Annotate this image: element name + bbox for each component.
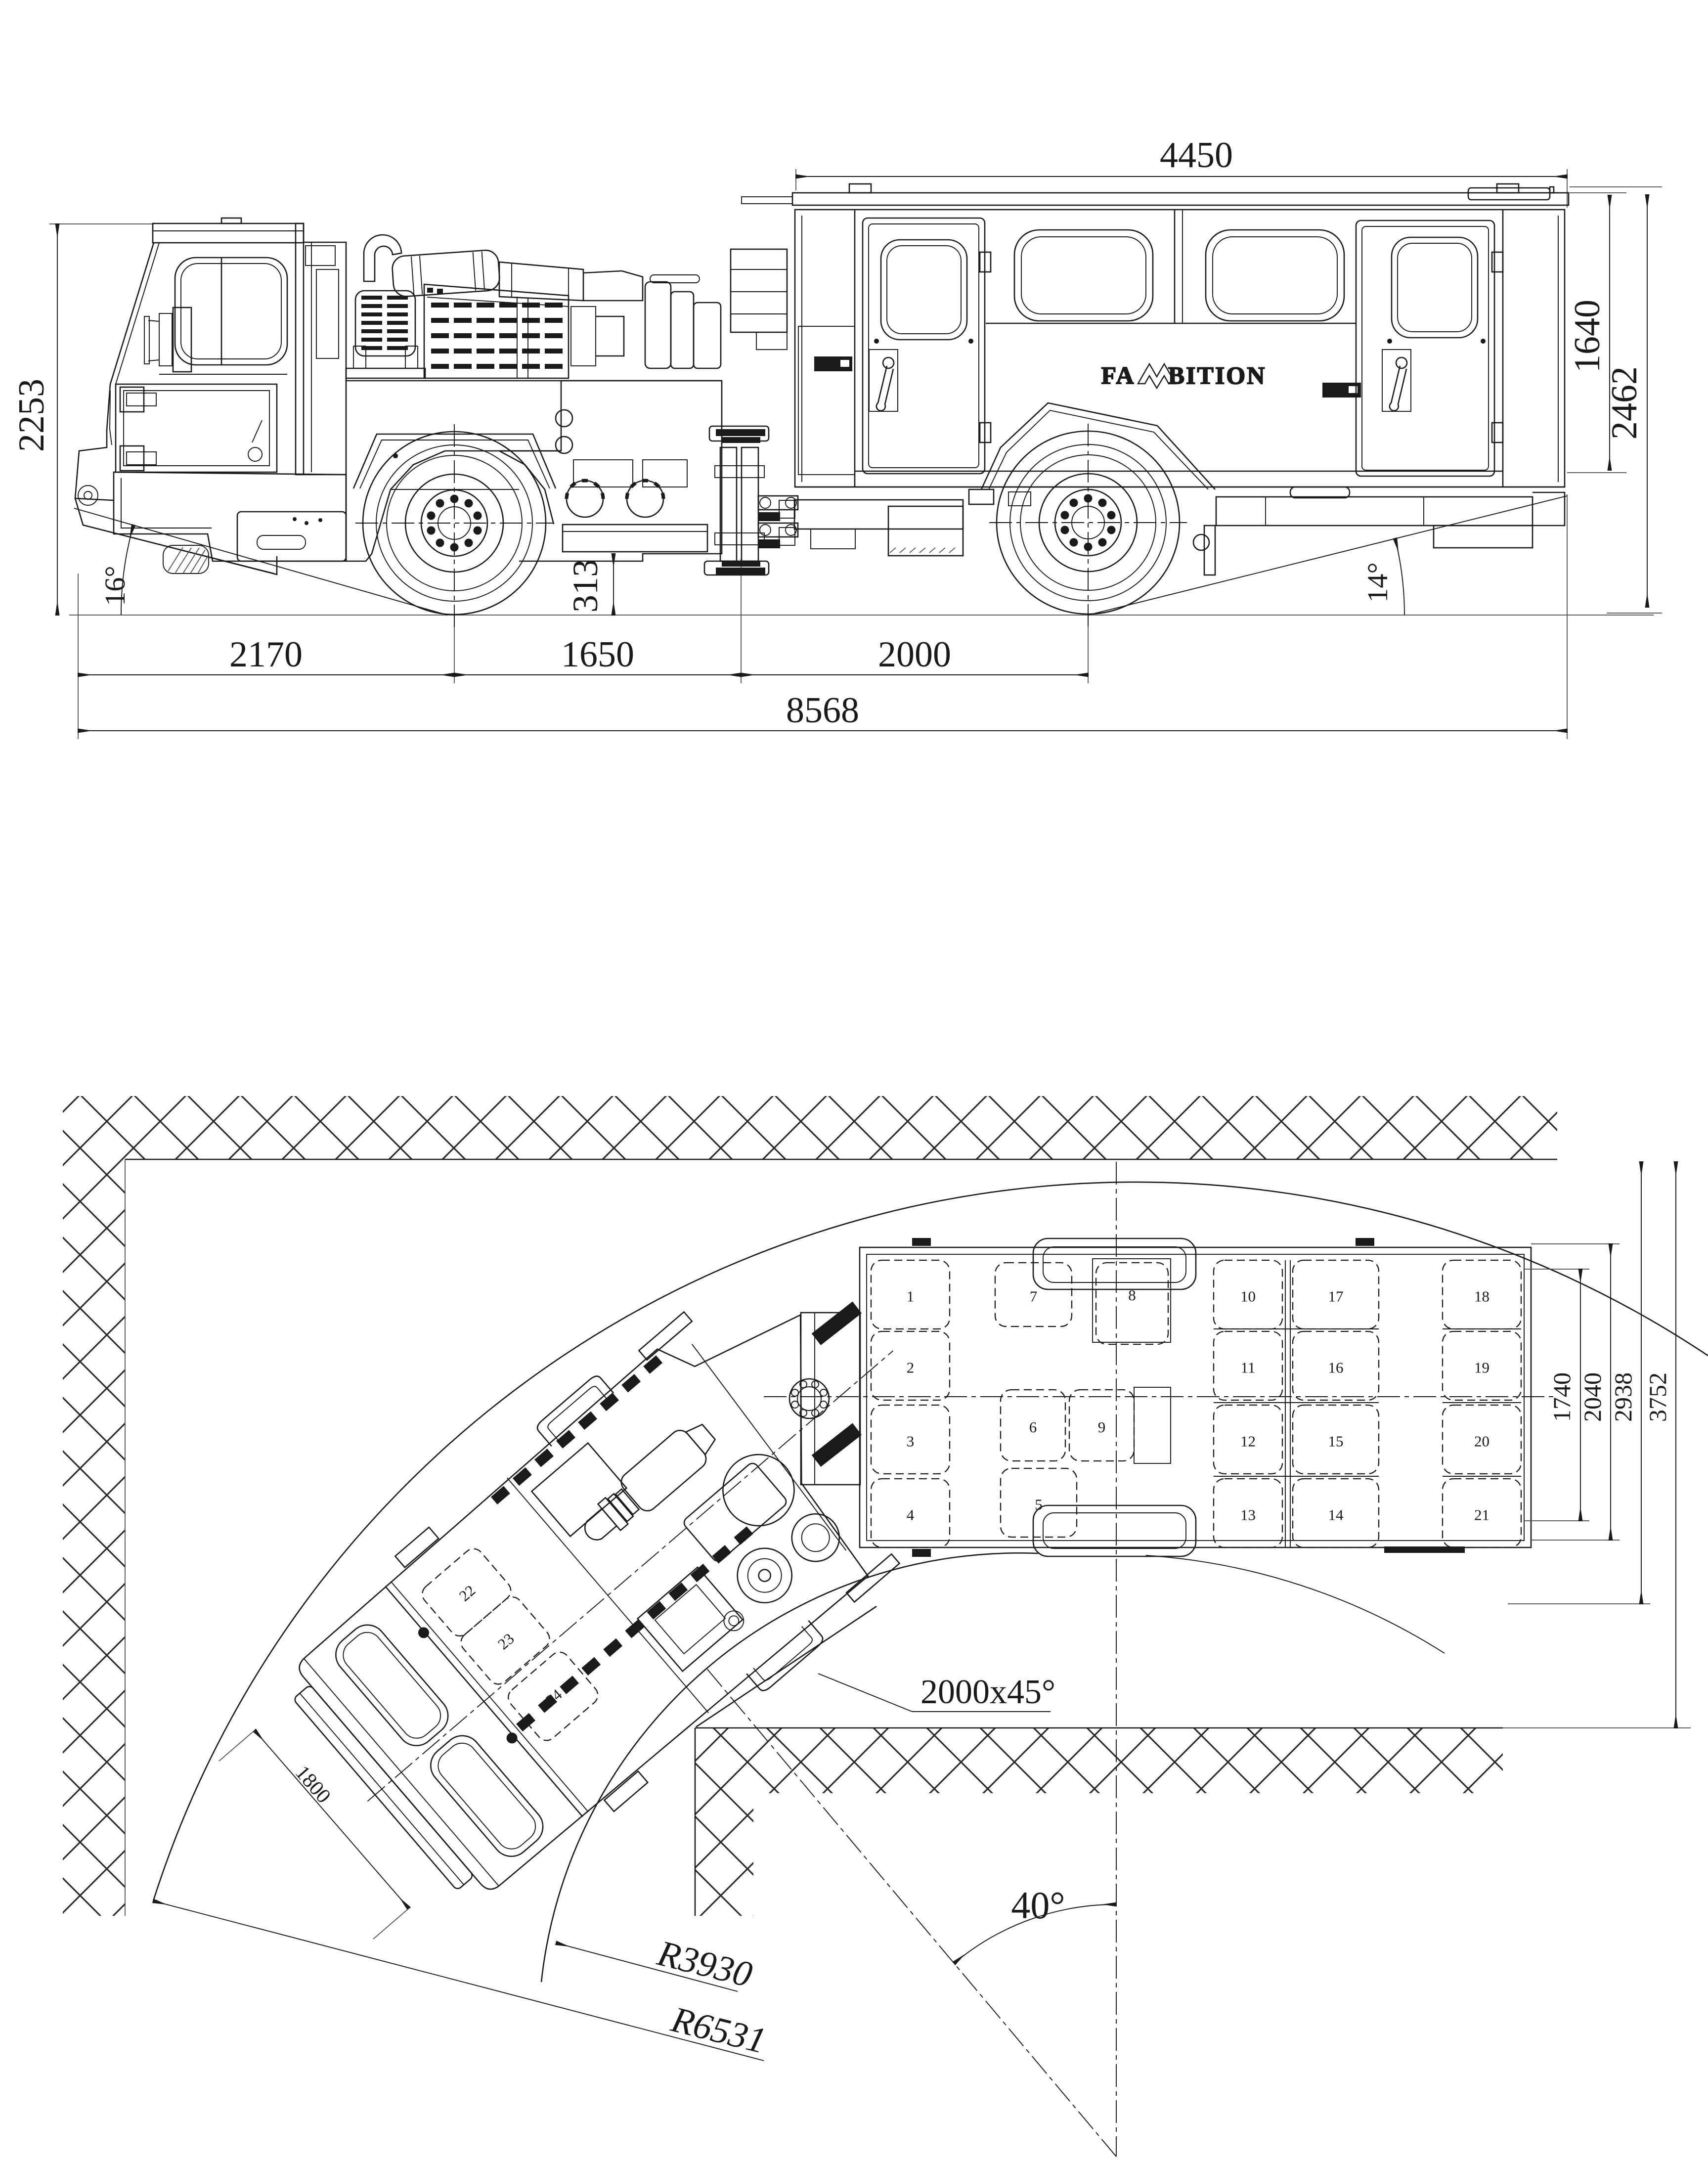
svg-text:22: 22 (456, 1582, 479, 1605)
svg-text:5: 5 (1035, 1496, 1043, 1513)
svg-text:BITION: BITION (1168, 361, 1267, 389)
svg-text:17: 17 (1328, 1288, 1344, 1305)
svg-text:2938: 2938 (1609, 1372, 1637, 1422)
svg-text:2253: 2253 (11, 379, 52, 452)
svg-text:FA: FA (1101, 361, 1136, 389)
svg-text:1740: 1740 (1548, 1372, 1576, 1422)
svg-text:2000x45°: 2000x45° (920, 1673, 1055, 1711)
svg-text:2000: 2000 (878, 634, 951, 675)
svg-text:14: 14 (1328, 1506, 1344, 1524)
svg-text:40°: 40° (1011, 1884, 1065, 1927)
svg-text:2170: 2170 (229, 634, 303, 675)
svg-text:313: 313 (566, 559, 605, 613)
svg-text:1800: 1800 (291, 1762, 335, 1808)
svg-text:16°: 16° (99, 566, 131, 606)
svg-text:16: 16 (1328, 1359, 1344, 1376)
svg-text:4450: 4450 (1160, 135, 1233, 176)
svg-text:8568: 8568 (786, 690, 859, 731)
svg-text:9: 9 (1098, 1418, 1106, 1436)
svg-text:8: 8 (1128, 1286, 1136, 1304)
svg-text:11: 11 (1241, 1359, 1256, 1376)
svg-text:4: 4 (907, 1506, 915, 1524)
svg-text:1: 1 (907, 1288, 915, 1305)
svg-text:3752: 3752 (1644, 1372, 1671, 1422)
svg-text:19: 19 (1474, 1359, 1489, 1376)
svg-text:12: 12 (1240, 1433, 1256, 1450)
svg-text:10: 10 (1240, 1288, 1256, 1305)
svg-text:R6531: R6531 (667, 1999, 770, 2062)
svg-text:2: 2 (907, 1359, 915, 1376)
svg-text:21: 21 (1474, 1506, 1489, 1524)
svg-text:2462: 2462 (1604, 366, 1645, 440)
svg-text:R3930: R3930 (653, 1933, 756, 1995)
svg-text:23: 23 (494, 1630, 517, 1653)
svg-text:2040: 2040 (1578, 1372, 1606, 1422)
svg-text:1640: 1640 (1567, 300, 1608, 373)
svg-text:15: 15 (1328, 1433, 1344, 1450)
svg-text:6: 6 (1029, 1418, 1037, 1436)
svg-text:20: 20 (1474, 1433, 1489, 1450)
svg-text:14°: 14° (1361, 562, 1394, 602)
svg-text:13: 13 (1240, 1506, 1256, 1524)
svg-text:3: 3 (907, 1433, 915, 1450)
svg-text:1650: 1650 (561, 634, 634, 675)
svg-text:7: 7 (1030, 1288, 1038, 1305)
svg-text:18: 18 (1474, 1288, 1489, 1305)
